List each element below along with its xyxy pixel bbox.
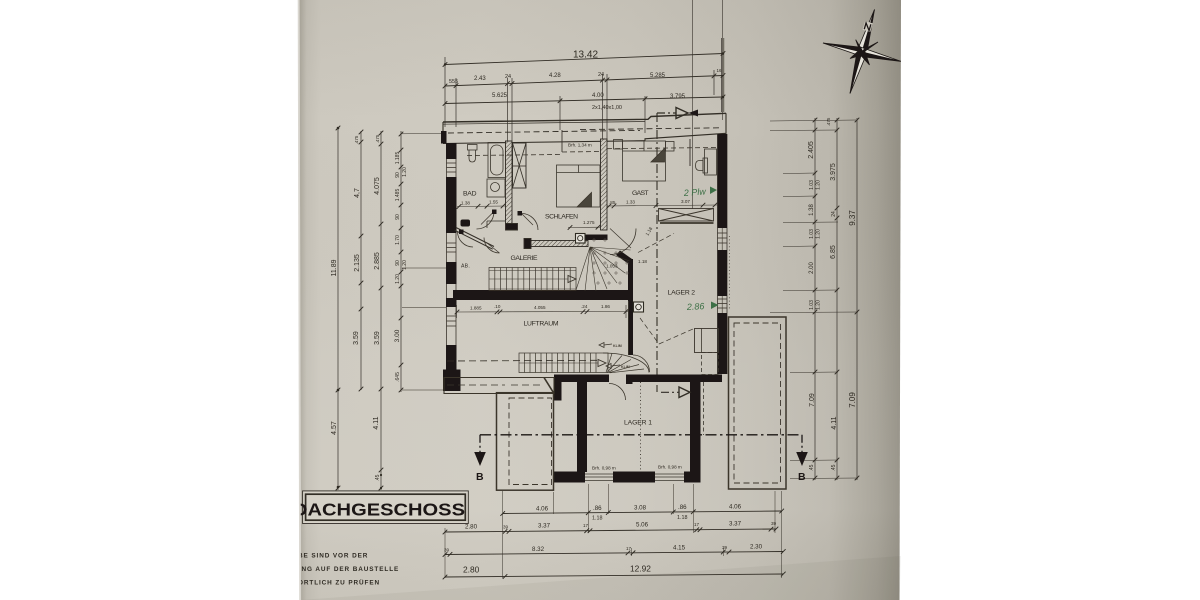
svg-text:90: 90 [395, 172, 401, 178]
svg-text:1.885: 1.885 [470, 306, 482, 311]
svg-text:KLIM: KLIM [621, 365, 630, 369]
svg-text:SCHLAFEN: SCHLAFEN [545, 214, 578, 221]
svg-text:1.18: 1.18 [638, 259, 647, 264]
svg-text:24: 24 [598, 72, 604, 78]
svg-text:GAST: GAST [632, 190, 649, 197]
svg-text:LAGER 1: LAGER 1 [624, 420, 652, 427]
svg-text:1.20: 1.20 [816, 300, 822, 310]
svg-text:4.28: 4.28 [549, 73, 561, 79]
svg-text:4.075: 4.075 [374, 177, 381, 195]
svg-text:555: 555 [449, 79, 458, 85]
svg-text:KLIM: KLIM [613, 344, 622, 348]
svg-text:.10: .10 [494, 304, 501, 309]
svg-text:LUFTRAUM: LUFTRAUM [524, 321, 559, 328]
svg-text:5.285: 5.285 [650, 73, 666, 79]
svg-text:7.09: 7.09 [848, 392, 857, 408]
svg-text:1.20: 1.20 [402, 260, 408, 270]
svg-text:3.795: 3.795 [670, 94, 686, 100]
svg-text:3.37: 3.37 [538, 523, 551, 530]
svg-text:8.32: 8.32 [532, 546, 545, 553]
svg-text:.645: .645 [395, 372, 401, 382]
svg-text:3.00: 3.00 [394, 329, 401, 342]
svg-text:GALERIE: GALERIE [511, 255, 538, 262]
svg-text:4.11: 4.11 [831, 416, 838, 429]
svg-text:2.80: 2.80 [463, 565, 480, 575]
svg-text:2.885: 2.885 [374, 252, 381, 270]
svg-text:13.42: 13.42 [573, 50, 598, 61]
svg-text:.45: .45 [831, 464, 837, 471]
svg-text:3.59: 3.59 [353, 331, 360, 345]
svg-text:5.06: 5.06 [636, 522, 649, 529]
svg-text:5.625: 5.625 [492, 93, 508, 99]
svg-text:24: 24 [831, 211, 837, 217]
svg-text:39: 39 [771, 521, 777, 526]
svg-text:2.86: 2.86 [686, 301, 705, 312]
svg-text:4.57: 4.57 [331, 421, 338, 435]
svg-text:3.08: 3.08 [634, 505, 647, 512]
svg-text:3.975: 3.975 [830, 163, 837, 181]
svg-text:1.33: 1.33 [626, 200, 635, 205]
svg-text:9.37: 9.37 [848, 210, 857, 226]
svg-text:1.275: 1.275 [583, 220, 595, 225]
svg-text:1.20: 1.20 [816, 180, 822, 190]
svg-text:4.11: 4.11 [373, 416, 380, 429]
svg-text:90: 90 [395, 260, 401, 266]
svg-text:ORTLICH ZU PRÜFEN: ORTLICH ZU PRÜFEN [298, 578, 380, 587]
svg-text:17: 17 [694, 522, 700, 527]
svg-text:4.055: 4.055 [534, 305, 546, 310]
svg-text:.475: .475 [375, 134, 380, 143]
svg-text:.475: .475 [354, 135, 359, 144]
svg-text:12.92: 12.92 [630, 564, 651, 574]
svg-text:.85: .85 [609, 200, 616, 205]
svg-text:1.20: 1.20 [402, 167, 408, 177]
svg-text:7.09: 7.09 [809, 393, 816, 407]
svg-text:.24: .24 [581, 304, 588, 309]
svg-text:1.03: 1.03 [809, 300, 815, 310]
svg-text:90: 90 [395, 214, 401, 220]
svg-text:17: 17 [626, 546, 632, 551]
svg-text:1.485: 1.485 [395, 189, 401, 202]
svg-text:4.06: 4.06 [536, 506, 549, 513]
svg-text:3.37: 3.37 [729, 521, 742, 528]
svg-text:B: B [476, 471, 484, 483]
svg-text:1.55: 1.55 [489, 200, 498, 205]
svg-text:Brh. 0,98 m: Brh. 0,98 m [658, 465, 682, 470]
svg-text:2.80: 2.80 [465, 524, 478, 531]
svg-text:4.06: 4.06 [729, 504, 742, 511]
svg-text:2.43: 2.43 [474, 76, 486, 82]
svg-text:1.03: 1.03 [809, 180, 815, 190]
svg-text:LAGER 2: LAGER 2 [668, 290, 696, 297]
svg-text:3.07: 3.07 [681, 199, 690, 204]
svg-text:17: 17 [583, 523, 589, 528]
svg-text:4.15: 4.15 [673, 545, 686, 552]
svg-text:DACHGESCHOSS: DACHGESCHOSS [293, 500, 465, 520]
svg-text:UNG AUF DER BAUSTELLE: UNG AUF DER BAUSTELLE [296, 566, 399, 573]
svg-text:39: 39 [503, 525, 509, 530]
svg-text:1.20: 1.20 [816, 229, 822, 239]
svg-text:1.38: 1.38 [809, 204, 815, 216]
svg-text:.45: .45 [809, 464, 815, 471]
svg-text:1.03: 1.03 [809, 229, 815, 239]
svg-text:2.30: 2.30 [750, 544, 763, 551]
svg-text:1.20: 1.20 [395, 274, 401, 284]
svg-text:4.00: 4.00 [592, 93, 604, 99]
svg-text:11.89: 11.89 [331, 259, 338, 276]
svg-text:.86: .86 [593, 505, 602, 512]
svg-text:1.18: 1.18 [677, 515, 688, 521]
svg-text:39: 39 [722, 545, 728, 550]
svg-text:1.86: 1.86 [601, 304, 610, 309]
svg-text:16: 16 [717, 68, 723, 73]
svg-text:.475: .475 [826, 117, 831, 126]
svg-text:24: 24 [505, 74, 511, 80]
svg-text:BAD: BAD [463, 191, 477, 198]
svg-text:.86: .86 [678, 504, 687, 511]
svg-text:1.185: 1.185 [395, 152, 401, 165]
svg-text:2.135: 2.135 [354, 254, 361, 272]
svg-text:B: B [798, 471, 806, 483]
svg-text:2.405: 2.405 [808, 141, 815, 159]
svg-text:2x1,40x1,00: 2x1,40x1,00 [592, 105, 622, 111]
svg-text:AB.: AB. [461, 264, 470, 270]
svg-text:BE SIND VOR DER: BE SIND VOR DER [298, 553, 368, 560]
svg-text:2.00: 2.00 [809, 262, 815, 274]
svg-text:2 Plw: 2 Plw [682, 186, 706, 198]
svg-text:1.053: 1.053 [606, 264, 618, 269]
svg-text:Brh. 0,98 m: Brh. 0,98 m [592, 466, 616, 471]
svg-text:6.85: 6.85 [830, 245, 837, 259]
svg-text:Brh. 1,34 m: Brh. 1,34 m [568, 143, 592, 148]
svg-text:3.59: 3.59 [374, 331, 381, 345]
svg-text:39: 39 [444, 548, 450, 553]
svg-text:1.70: 1.70 [395, 235, 401, 245]
svg-text:4,7: 4,7 [354, 188, 361, 198]
svg-text:1.38: 1.38 [461, 201, 470, 206]
svg-text:1.18: 1.18 [592, 516, 603, 522]
